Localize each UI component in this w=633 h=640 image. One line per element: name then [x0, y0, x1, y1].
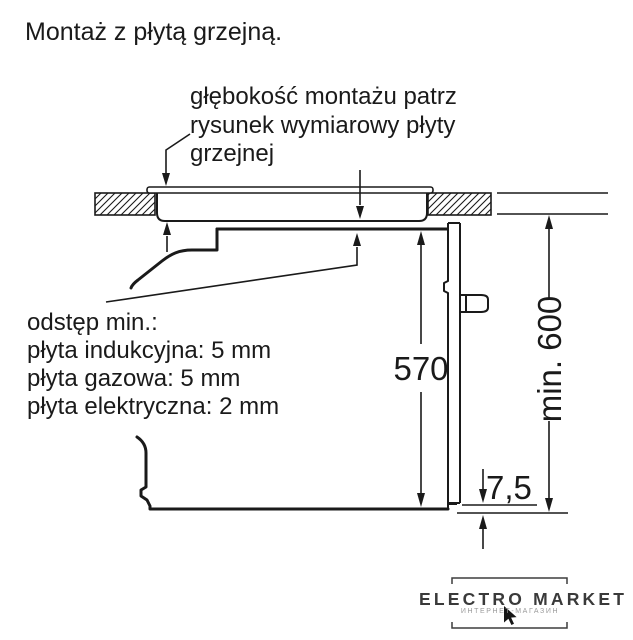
depth-note-line2: rysunek wymiarowy płyty	[190, 112, 457, 141]
oven-bottom-step	[448, 504, 457, 509]
arrowhead-down	[417, 493, 425, 507]
dimension-label-7-5: 7,5	[486, 469, 542, 507]
clearance-note-electric: płyta elektryczna: 2 mm	[27, 393, 279, 421]
depth-note: głębokość montażu patrz rysunek wymiarow…	[190, 83, 457, 169]
hob-gap-arrow	[163, 222, 171, 252]
oven-front-flange-broken	[131, 229, 217, 288]
arrowhead-up	[163, 222, 171, 235]
clearance-note: odstęp min.: płyta indukcyjna: 5 mm płyt…	[27, 309, 279, 421]
arrowhead-down	[162, 173, 170, 186]
clearance-note-heading: odstęp min.:	[27, 309, 279, 337]
diagram-title: Montaż z płytą grzejną.	[25, 18, 282, 47]
dimension-label-570: 570	[386, 350, 456, 388]
countertop-hatch-right	[428, 193, 491, 215]
hob-top-plate	[147, 187, 433, 193]
watermark-brand: ELECTRO MARKET	[419, 589, 601, 610]
arrowhead-up	[545, 215, 553, 229]
watermark-subtitle: ИНТЕРНЕТ-МАГАЗИН	[429, 608, 591, 615]
door-handle	[460, 295, 488, 312]
depth-note-line1: głębokość montażu patrz	[190, 83, 457, 112]
arrowhead-up	[479, 515, 487, 529]
clearance-leader	[106, 233, 361, 302]
clearance-note-gas: płyta gazowa: 5 mm	[27, 365, 279, 393]
arrowhead-down	[545, 498, 553, 512]
countertop-extension-lines	[497, 193, 608, 214]
depth-note-line3: grzejnej	[190, 140, 457, 169]
hob-profile	[147, 187, 433, 221]
countertop-hatch-left	[95, 193, 155, 215]
installation-diagram: Montaż z płytą grzejną. głębokość montaż…	[0, 0, 633, 640]
oven-bottom-left-broken	[137, 437, 448, 509]
clearance-note-induction: płyta indukcyjna: 5 mm	[27, 337, 279, 365]
arrowhead-up	[417, 231, 425, 245]
dimension-label-min-600: min. 600	[531, 294, 567, 424]
arrowhead-up	[353, 233, 361, 246]
hob-tub	[157, 190, 427, 221]
